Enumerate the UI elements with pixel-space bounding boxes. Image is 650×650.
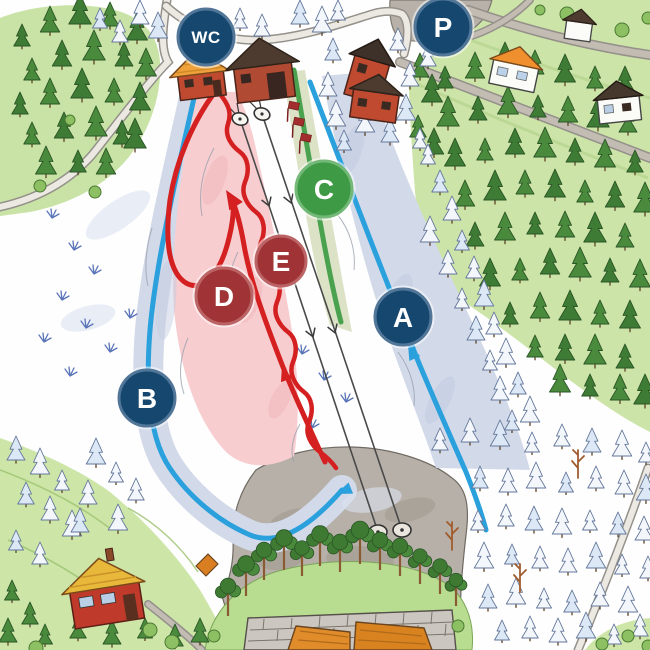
winter-tree-icon bbox=[639, 442, 650, 465]
bush-icon bbox=[65, 115, 75, 125]
bare-tree-icon bbox=[572, 450, 584, 478]
bush-icon bbox=[642, 12, 650, 24]
bush-icon bbox=[89, 186, 101, 198]
winter-tree-icon bbox=[498, 504, 515, 529]
bush-icon bbox=[535, 5, 545, 15]
winter-tree-icon bbox=[131, 0, 149, 28]
winter-tree-icon bbox=[526, 462, 546, 492]
winter-tree-icon bbox=[472, 466, 489, 491]
winter-tree-icon bbox=[583, 510, 598, 533]
marker-trail-d[interactable]: D bbox=[194, 266, 254, 326]
winter-tree-icon bbox=[564, 590, 581, 615]
grass-tuft-icon bbox=[39, 333, 51, 342]
bush-icon bbox=[34, 180, 46, 192]
winter-tree-icon bbox=[583, 428, 601, 456]
ski-map-canvas: WC P C E D A B bbox=[0, 0, 650, 650]
winter-tree-icon bbox=[552, 508, 572, 538]
marker-trail-e[interactable]: E bbox=[254, 234, 308, 288]
winter-tree-icon bbox=[86, 438, 106, 468]
bush-icon bbox=[615, 23, 629, 37]
winter-tree-icon bbox=[522, 616, 539, 641]
winter-tree-icon bbox=[537, 588, 552, 611]
winter-tree-icon bbox=[618, 586, 638, 616]
winter-tree-icon bbox=[612, 430, 632, 460]
bush-icon bbox=[29, 641, 43, 650]
svg-text:A: A bbox=[393, 302, 413, 333]
winter-tree-icon bbox=[588, 466, 605, 491]
svg-text:WC: WC bbox=[191, 28, 220, 47]
winter-tree-icon bbox=[615, 470, 633, 498]
winter-tree-icon bbox=[549, 618, 567, 646]
winter-tree-icon bbox=[128, 478, 145, 503]
winter-tree-icon bbox=[525, 506, 543, 534]
grass-tuft-icon bbox=[105, 343, 117, 352]
bush-icon bbox=[165, 635, 179, 649]
winter-tree-icon bbox=[510, 372, 527, 397]
winter-tree-icon bbox=[495, 620, 510, 643]
grass-tuft-icon bbox=[297, 345, 309, 354]
winter-tree-icon bbox=[325, 38, 342, 63]
bush-icon bbox=[622, 630, 634, 642]
winter-tree-icon bbox=[520, 396, 540, 426]
svg-text:E: E bbox=[272, 246, 291, 277]
winter-tree-icon bbox=[331, 0, 346, 23]
ski-map: WC P C E D A B bbox=[0, 0, 650, 650]
winter-tree-icon bbox=[505, 544, 520, 567]
marker-trail-b[interactable]: B bbox=[117, 368, 177, 428]
svg-text:D: D bbox=[214, 281, 234, 312]
marker-wc[interactable]: WC bbox=[176, 7, 236, 67]
bush-icon bbox=[452, 620, 464, 632]
svg-text:P: P bbox=[434, 12, 453, 43]
grass-tuft-icon bbox=[89, 265, 101, 274]
shed-small bbox=[196, 554, 218, 576]
winter-tree-icon bbox=[254, 14, 271, 39]
svg-text:C: C bbox=[314, 174, 334, 205]
winter-tree-icon bbox=[499, 468, 517, 496]
winter-tree-icon bbox=[291, 0, 309, 28]
grass-tuft-icon bbox=[125, 309, 137, 318]
winter-tree-icon bbox=[496, 338, 516, 368]
winter-tree-icon bbox=[109, 462, 124, 485]
marker-trail-a[interactable]: A bbox=[373, 287, 433, 347]
winter-tree-icon bbox=[635, 516, 650, 544]
grass-tuft-icon bbox=[65, 367, 77, 376]
winter-tree-icon bbox=[586, 542, 606, 572]
bush-icon bbox=[208, 630, 220, 642]
winter-tree-icon bbox=[525, 432, 540, 455]
grass-tuft-icon bbox=[57, 291, 69, 300]
bush-icon bbox=[143, 623, 157, 637]
marker-trail-c[interactable]: C bbox=[294, 159, 354, 219]
bush-icon bbox=[596, 638, 608, 650]
grass-tuft-icon bbox=[69, 241, 81, 250]
svg-text:B: B bbox=[137, 383, 157, 414]
winter-tree-icon bbox=[559, 548, 577, 576]
winter-tree-icon bbox=[640, 556, 650, 581]
marker-parking[interactable]: P bbox=[413, 0, 473, 57]
winter-tree-icon bbox=[532, 546, 549, 571]
winter-tree-icon bbox=[474, 542, 494, 572]
winter-tree-icon bbox=[506, 578, 526, 608]
winter-tree-icon bbox=[554, 424, 571, 449]
winter-tree-icon bbox=[479, 584, 497, 612]
winter-tree-icon bbox=[312, 6, 332, 36]
winter-tree-icon bbox=[559, 472, 574, 495]
grass-tuft-icon bbox=[47, 209, 59, 218]
grass-tuft-icon bbox=[341, 393, 353, 402]
